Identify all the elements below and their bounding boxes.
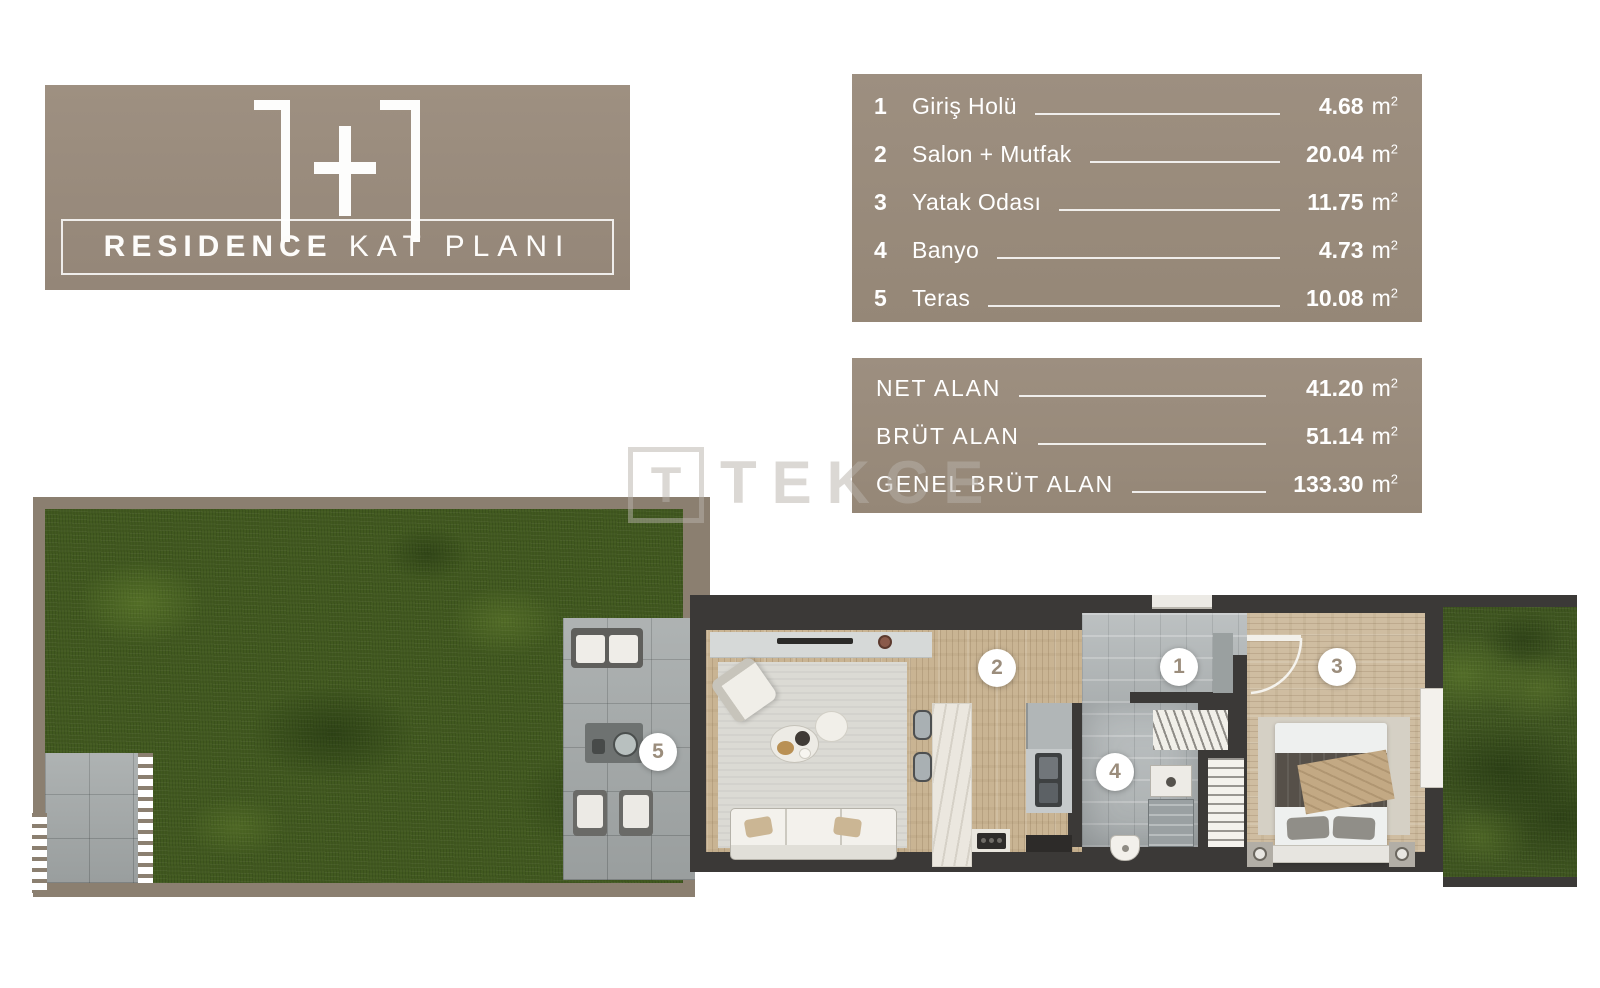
leader-line xyxy=(1059,209,1279,211)
floor-plan-page: 1+1 RESIDENCE KAT PLANI 1 Giriş Holü 4.6… xyxy=(0,0,1600,988)
room-marker-5: 5 xyxy=(639,733,677,771)
double-bed xyxy=(1275,723,1387,863)
outside-hatch-strip xyxy=(32,813,47,893)
leader-line xyxy=(1132,491,1266,493)
room-area-value: 20.04 xyxy=(1298,141,1364,168)
unit-m2: m2 xyxy=(1372,141,1398,168)
bar-stool xyxy=(913,752,932,782)
room-label: Teras xyxy=(912,285,970,312)
terrace-chair xyxy=(619,790,653,836)
table-row: NET ALAN 41.20 m2 xyxy=(876,364,1398,412)
room-marker-3: 3 xyxy=(1318,648,1356,686)
nightstand xyxy=(1389,842,1415,867)
tv xyxy=(777,638,853,644)
unit-m2: m2 xyxy=(1372,423,1398,450)
rooms-area-table: 1 Giriş Holü 4.68 m2 2 Salon + Mutfak 20… xyxy=(852,74,1422,322)
table-row: 4 Banyo 4.73 m2 xyxy=(874,226,1398,274)
kitchen-sink xyxy=(1035,753,1062,807)
terrace-coffee-table xyxy=(585,723,643,763)
paved-pad xyxy=(45,753,138,883)
room-number: 3 xyxy=(874,189,902,216)
pillow xyxy=(1286,816,1329,840)
room-number: 2 xyxy=(874,141,902,168)
total-label: NET ALAN xyxy=(876,375,1001,402)
toilet xyxy=(1110,835,1140,861)
washbasin xyxy=(1150,765,1192,797)
unit-m2: m2 xyxy=(1372,375,1398,402)
wall xyxy=(1443,595,1577,607)
leader-line xyxy=(1038,443,1266,445)
brand-watermark-text: TEKCE xyxy=(720,453,998,513)
room-number: 4 xyxy=(874,237,902,264)
table-row: 5 Teras 10.08 m2 xyxy=(874,274,1398,322)
total-value: 41.20 xyxy=(1284,375,1364,402)
unit-m2: m2 xyxy=(1372,237,1398,264)
brand-watermark: T TEKCE xyxy=(628,445,1048,537)
bar-stool xyxy=(913,710,932,740)
total-value: 51.14 xyxy=(1284,423,1364,450)
apartment-unit xyxy=(690,595,1443,872)
garden-right xyxy=(1443,607,1577,877)
table-row: 3 Yatak Odası 11.75 m2 xyxy=(874,178,1398,226)
unit-m2: m2 xyxy=(1372,285,1398,312)
room-label: Yatak Odası xyxy=(912,189,1041,216)
room-marker-2: 2 xyxy=(978,649,1016,687)
brand-logo-icon: T xyxy=(628,447,704,523)
leader-line xyxy=(1019,395,1265,397)
pillow xyxy=(1332,816,1375,840)
room-number: 1 xyxy=(874,93,902,120)
entrance-door xyxy=(1152,595,1212,609)
wall xyxy=(1130,692,1247,703)
bedroom-door-swing xyxy=(1243,609,1305,699)
room-area-value: 10.08 xyxy=(1298,285,1364,312)
shower xyxy=(1148,799,1194,847)
room-marker-4: 4 xyxy=(1096,753,1134,791)
leader-line xyxy=(988,305,1279,307)
terrace-loveseat xyxy=(571,628,643,668)
stove xyxy=(977,833,1006,849)
room-area-value: 4.73 xyxy=(1298,237,1364,264)
floor-plan: 1 2 3 4 5 xyxy=(33,495,1577,907)
side-table xyxy=(815,711,848,742)
unit-m2: m2 xyxy=(1372,189,1398,216)
room-label: Giriş Holü xyxy=(912,93,1017,120)
title-label-residence: RESIDENCE xyxy=(104,230,333,264)
radiator xyxy=(1420,688,1444,788)
entry-closet xyxy=(1153,710,1228,750)
leader-line xyxy=(1035,113,1280,115)
room-area-value: 4.68 xyxy=(1298,93,1364,120)
title-label-box: RESIDENCE KAT PLANI xyxy=(61,219,614,275)
title-panel: 1+1 RESIDENCE KAT PLANI xyxy=(45,85,630,290)
brand-logo-letter: T xyxy=(651,456,682,514)
headboard xyxy=(1271,845,1391,863)
total-value: 133.30 xyxy=(1284,471,1364,498)
pad-hatch-strip xyxy=(138,753,153,883)
unit-m2: m2 xyxy=(1372,471,1398,498)
kitchen-cabinet xyxy=(1026,703,1072,749)
room-label: Salon + Mutfak xyxy=(912,141,1072,168)
leader-line xyxy=(1090,161,1280,163)
wall xyxy=(1443,877,1577,887)
room-marker-1: 1 xyxy=(1160,648,1198,686)
coffee-table xyxy=(770,725,819,763)
wardrobe-shelves xyxy=(1208,758,1244,847)
kitchen-island xyxy=(932,703,972,867)
table-row: 1 Giriş Holü 4.68 m2 xyxy=(874,82,1398,130)
title-label-kat-plani: KAT PLANI xyxy=(349,230,572,264)
tv-console xyxy=(710,632,932,658)
unit-m2: m2 xyxy=(1372,93,1398,120)
room-area-value: 11.75 xyxy=(1298,189,1364,216)
plant-pot xyxy=(878,635,892,649)
room-number: 5 xyxy=(874,285,902,312)
table-row: 2 Salon + Mutfak 20.04 m2 xyxy=(874,130,1398,178)
leader-line xyxy=(997,257,1279,259)
wall-pocket xyxy=(1213,633,1233,693)
sofa xyxy=(730,808,897,860)
room-label: Banyo xyxy=(912,237,979,264)
terrace-chair xyxy=(573,790,607,836)
kitchen-lower-cabinet xyxy=(1026,835,1072,852)
nightstand xyxy=(1247,842,1273,867)
